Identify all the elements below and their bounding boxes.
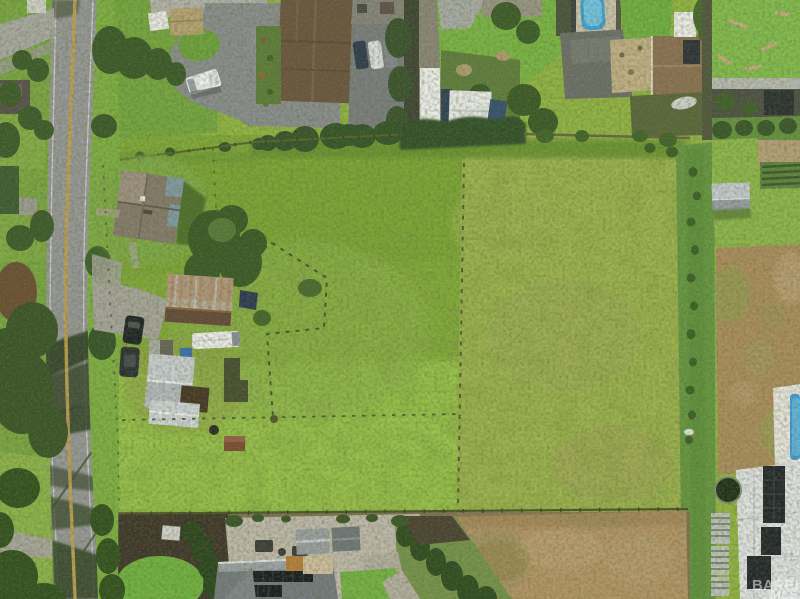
svg-text:MLS: MLS [770, 587, 798, 599]
